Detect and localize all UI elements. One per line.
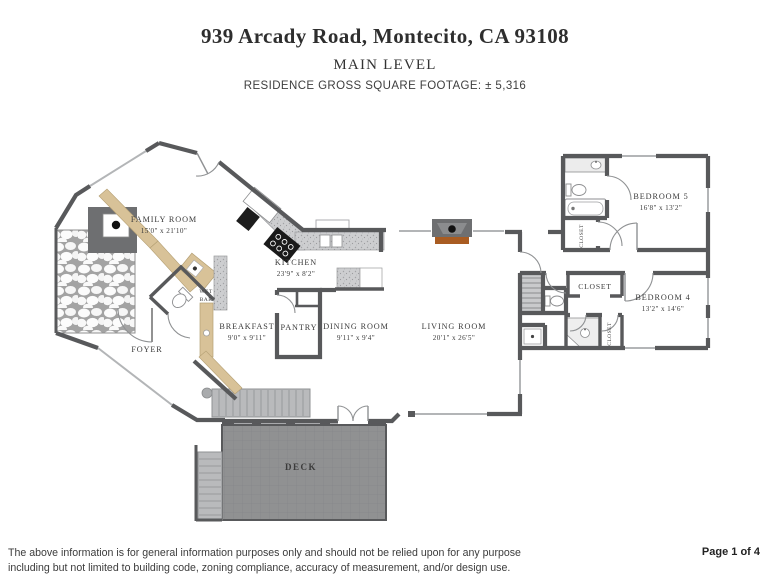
family-room-dims: 15'0" x 21'10" bbox=[141, 227, 187, 235]
living-room-dims: 20'1" x 26'5" bbox=[433, 334, 475, 342]
wet-bar-label-line2: BAR bbox=[200, 297, 213, 303]
kitchen-dims: 23'9" x 8'2" bbox=[277, 270, 315, 278]
bedroom5-dims: 16'8" x 13'2" bbox=[640, 204, 682, 212]
living-room-fireplace bbox=[432, 219, 472, 244]
family-room-label: FAMILY ROOM bbox=[131, 215, 197, 224]
floor-plan: FAMILY ROOM 15'0" x 21'10" KITCHEN 23'9"… bbox=[0, 0, 770, 582]
bedroom4-label: BEDROOM 4 bbox=[635, 293, 690, 302]
wet-bar-label-line1: WET bbox=[199, 289, 212, 295]
closet-bed5-label: CLOSET bbox=[579, 224, 585, 248]
breakfast-dims: 9'0" x 9'11" bbox=[228, 334, 266, 342]
dining-room-dims: 9'11" x 9'4" bbox=[337, 334, 375, 342]
disclaimer-line1: The above information is for general inf… bbox=[8, 546, 628, 561]
staircase-upper bbox=[202, 388, 310, 417]
closet-bed4-label: CLOSET bbox=[607, 322, 613, 346]
living-room-label: LIVING ROOM bbox=[422, 322, 487, 331]
disclaimer-line2: including but not limited to building co… bbox=[8, 561, 628, 576]
kitchen-label: KITCHEN bbox=[275, 258, 317, 267]
bed5-bath-fixtures bbox=[565, 158, 606, 218]
breakfast-label: BREAKFAST bbox=[219, 322, 274, 331]
dining-room-label: DINING ROOM bbox=[323, 322, 389, 331]
bedroom5-label: BEDROOM 5 bbox=[633, 192, 688, 201]
bed4-bath-fixtures bbox=[566, 318, 599, 347]
page-number: Page 1 of 4 bbox=[702, 546, 760, 558]
foyer-label: FOYER bbox=[131, 345, 162, 354]
pantry-label: PANTRY bbox=[281, 323, 318, 332]
deck-label: DECK bbox=[285, 462, 317, 472]
closet-hall-label: CLOSET bbox=[578, 282, 612, 291]
disclaimer: The above information is for general inf… bbox=[8, 546, 628, 575]
staircase-lower bbox=[196, 445, 222, 521]
bedroom4-dims: 13'2" x 14'6" bbox=[642, 305, 684, 313]
staircase-hall bbox=[520, 273, 543, 313]
